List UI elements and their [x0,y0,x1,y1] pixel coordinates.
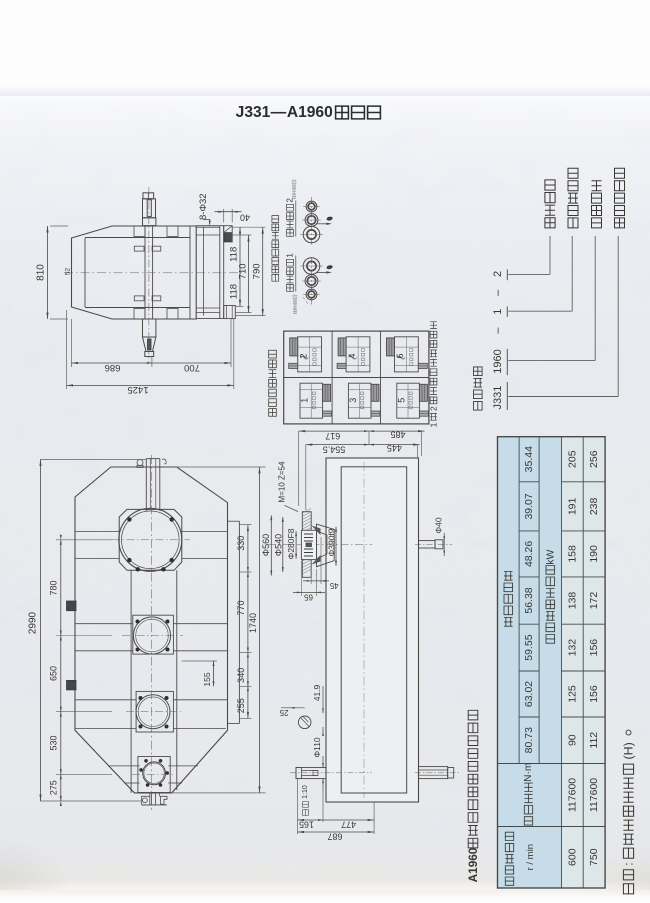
svg-text:330: 330 [236,536,246,551]
svg-text:8-Φ32: 8-Φ32 [198,193,209,220]
svg-text:477: 477 [341,820,356,830]
svg-text:1: 1 [300,398,310,403]
svg-text:5: 5 [396,398,406,403]
svg-text:1740: 1740 [248,613,258,633]
svg-text:1: 1 [429,422,439,427]
svg-text:Φ540: Φ540 [273,534,283,556]
svg-text:kW: kW [544,549,556,564]
svg-text:52: 52 [64,268,71,276]
svg-text:48.26: 48.26 [523,541,535,567]
svg-text:Φ40: Φ40 [434,517,444,534]
svg-text:59.55: 59.55 [523,634,535,660]
svg-text:–: – [492,327,504,334]
svg-text:2990: 2990 [28,611,39,634]
svg-text:617: 617 [325,431,340,441]
svg-text:191: 191 [566,497,578,515]
svg-text:6: 6 [395,353,405,358]
svg-text:117600: 117600 [566,778,578,812]
svg-text:686: 686 [105,362,121,373]
svg-text:39.07: 39.07 [523,493,535,519]
svg-text:112: 112 [588,732,600,749]
svg-text:41.9: 41.9 [312,684,322,701]
svg-text:1:10: 1:10 [302,785,309,799]
svg-text:238: 238 [588,497,600,515]
svg-text:530: 530 [48,735,58,750]
svg-text:2: 2 [286,198,295,203]
svg-text:r / min: r / min [525,844,536,870]
svg-text:205: 205 [566,450,578,468]
svg-text:485: 485 [390,430,405,440]
svg-text:780: 780 [48,580,58,595]
svg-text:1960: 1960 [492,349,504,373]
svg-text:A1960: A1960 [287,104,333,121]
svg-text:Φ280F8: Φ280F8 [286,528,296,559]
svg-text:Φ390f9: Φ390f9 [327,528,337,556]
svg-text:790: 790 [251,263,262,279]
svg-text:445: 445 [387,443,402,453]
svg-text:N·m: N·m [523,763,534,782]
svg-text:J331: J331 [492,386,504,410]
svg-text:650: 650 [48,666,58,681]
svg-text:–: – [492,289,504,296]
svg-text:687: 687 [327,832,342,842]
svg-text:255: 255 [236,698,246,713]
svg-text:700: 700 [184,362,200,373]
svg-text:156: 156 [588,639,600,657]
svg-text:710: 710 [238,263,249,279]
svg-text:600: 600 [566,848,578,866]
svg-text:158: 158 [566,545,578,563]
svg-text:Φ110: Φ110 [312,737,322,758]
svg-text:172: 172 [588,592,600,610]
svg-text:63.02: 63.02 [523,681,535,707]
svg-text:2: 2 [492,271,504,277]
svg-text:340: 340 [236,668,246,683]
svg-text:750: 750 [588,848,600,866]
svg-text:80.73: 80.73 [523,727,535,753]
svg-text:M=10 Z=54: M=10 Z=54 [278,461,287,502]
svg-text:118: 118 [229,247,240,262]
svg-text:2: 2 [298,353,308,358]
svg-text:2: 2 [429,406,439,411]
svg-text:156: 156 [588,685,600,703]
svg-text:45: 45 [329,581,338,590]
svg-text:Φ560: Φ560 [261,534,271,556]
svg-text:256: 256 [588,450,600,468]
svg-text:118: 118 [229,284,240,299]
svg-text:117600: 117600 [588,778,600,812]
svg-text:35.44: 35.44 [523,446,535,472]
svg-text:155: 155 [202,672,212,686]
svg-text:A1960: A1960 [466,847,480,882]
svg-text:190: 190 [588,545,600,563]
svg-text:165: 165 [299,820,314,830]
svg-text::: : [622,862,636,865]
svg-text:J331: J331 [236,104,271,121]
svg-text:90: 90 [566,734,578,746]
svg-text:138: 138 [566,592,578,610]
svg-text:554.5: 554.5 [323,444,346,454]
svg-text:810: 810 [36,264,47,281]
svg-text:—: — [271,104,287,121]
svg-text:65: 65 [304,592,313,601]
svg-text:(H): (H) [622,742,636,759]
svg-text:1: 1 [492,309,504,315]
svg-text:56.38: 56.38 [523,587,535,613]
svg-text:275: 275 [48,780,58,795]
svg-text:1: 1 [286,253,295,258]
svg-text:770: 770 [236,600,246,615]
svg-text:1425: 1425 [127,384,148,395]
svg-text:4: 4 [347,353,357,358]
svg-text:132: 132 [566,639,578,657]
svg-text:25: 25 [279,708,288,717]
svg-text:40: 40 [240,212,250,222]
svg-text:3: 3 [348,398,358,403]
svg-text:125: 125 [566,685,578,703]
